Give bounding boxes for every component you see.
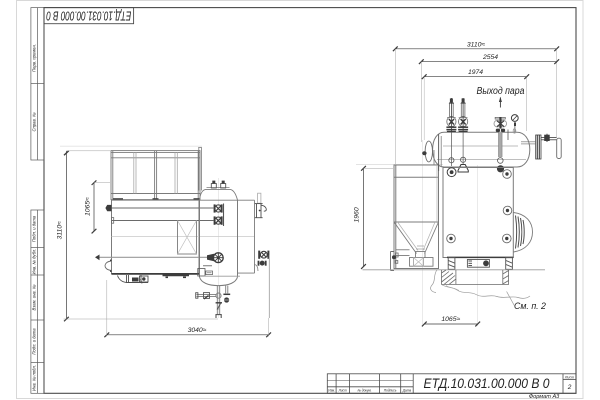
svg-text:Дата: Дата (402, 388, 412, 392)
svg-text:Справ. №: Справ. № (32, 112, 37, 131)
svg-text:Перв. примен.: Перв. примен. (32, 44, 37, 72)
svg-text:№ докум.: № докум. (357, 388, 371, 392)
svg-text:1065≈: 1065≈ (441, 316, 460, 323)
svg-text:ЕТД.10.031.00.000 В 0: ЕТД.10.031.00.000 В 0 (424, 376, 550, 391)
svg-text:Лист: Лист (564, 375, 574, 379)
svg-text:См. п. 2: См. п. 2 (514, 301, 546, 311)
svg-text:Подп. и дата: Подп. и дата (32, 215, 37, 242)
svg-text:ЕТД.10.031.00.000 В 0: ЕТД.10.031.00.000 В 0 (46, 8, 131, 22)
svg-text:3040≈: 3040≈ (188, 327, 207, 334)
svg-text:3110≈: 3110≈ (467, 41, 486, 48)
svg-text:1960: 1960 (354, 207, 361, 222)
svg-text:2: 2 (567, 384, 572, 391)
svg-text:1065≈: 1065≈ (85, 197, 92, 216)
svg-text:1974: 1974 (468, 69, 483, 76)
svg-text:Взам. инв. №: Взам. инв. № (32, 284, 37, 310)
svg-text:Подпись: Подпись (384, 388, 397, 392)
svg-text:2554: 2554 (482, 54, 498, 61)
svg-text:Лист: Лист (338, 388, 348, 392)
svg-text:Изм.: Изм. (328, 388, 335, 392)
svg-text:Инв. № дубл.: Инв. № дубл. (32, 249, 37, 275)
svg-text:Инв. № подл.: Инв. № подл. (32, 365, 37, 391)
svg-text:3110≈: 3110≈ (57, 221, 64, 240)
svg-text:Формат А3: Формат А3 (529, 394, 560, 400)
svg-text:Выход пара: Выход пара (477, 86, 525, 97)
svg-text:Подп. и дата: Подп. и дата (32, 328, 37, 355)
